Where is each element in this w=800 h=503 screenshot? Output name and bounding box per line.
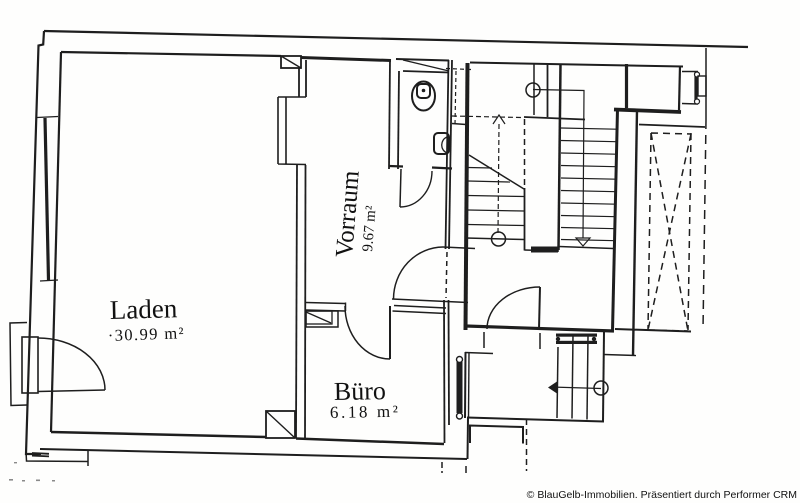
svg-text:© BlauGelb-Immobilien. Präsent: © BlauGelb-Immobilien. Präsentiert durch…	[527, 489, 797, 501]
svg-text:Laden: Laden	[109, 293, 178, 325]
svg-text:6.18 m²: 6.18 m²	[330, 402, 401, 422]
svg-text:·30.99 m²: ·30.99 m²	[107, 323, 185, 345]
